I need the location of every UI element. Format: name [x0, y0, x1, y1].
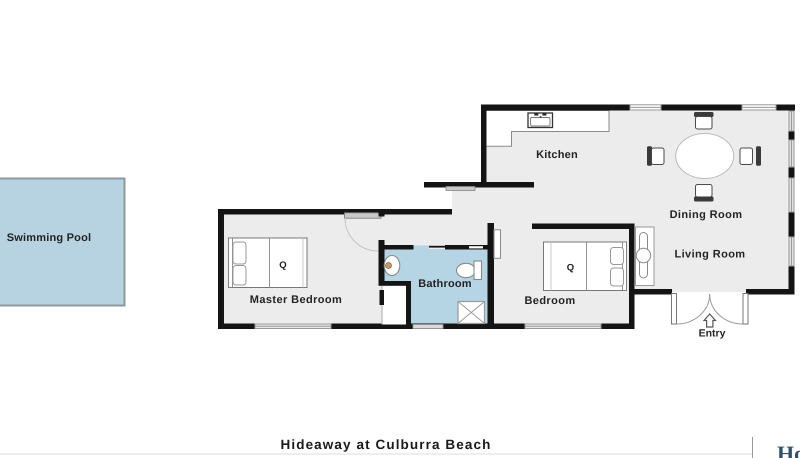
svg-text:Entry: Entry — [699, 328, 726, 340]
svg-text:Hideaway at Culburra Beach: Hideaway at Culburra Beach — [281, 437, 492, 452]
svg-text:Living Room: Living Room — [674, 249, 745, 261]
svg-text:Kitchen: Kitchen — [536, 149, 578, 161]
svg-text:Q: Q — [567, 263, 574, 274]
svg-text:Q: Q — [279, 260, 286, 271]
svg-text:Bedroom: Bedroom — [524, 295, 575, 307]
svg-text:Swimming Pool: Swimming Pool — [7, 232, 92, 244]
svg-text:Ho: Ho — [777, 441, 800, 458]
svg-text:Master Bedroom: Master Bedroom — [250, 294, 342, 306]
svg-text:Bathroom: Bathroom — [418, 278, 472, 290]
svg-text:Dining Room: Dining Room — [670, 209, 743, 221]
